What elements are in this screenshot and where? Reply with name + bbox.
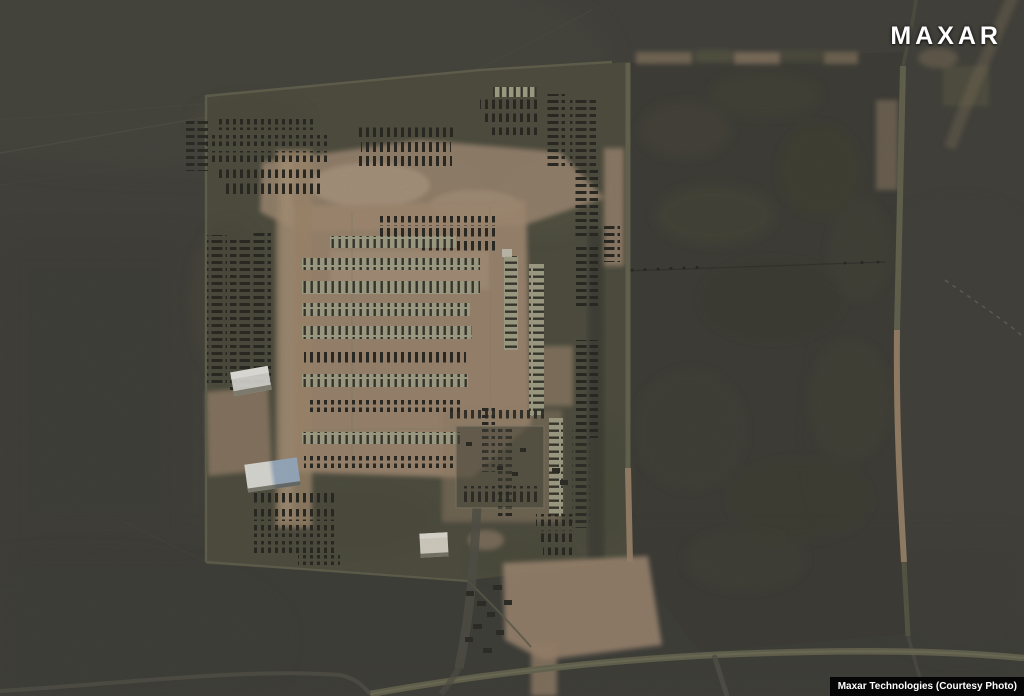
satellite-photo: MAXAR Maxar Technologies (Courtesy Photo…	[0, 0, 1024, 696]
film-grain-overlay	[0, 0, 1024, 696]
satellite-scene	[0, 0, 1024, 696]
caption-text: Maxar Technologies (Courtesy Photo)	[838, 681, 1017, 692]
maxar-logo: MAXAR	[890, 24, 1002, 49]
caption-bar: Maxar Technologies (Courtesy Photo)	[830, 677, 1024, 696]
